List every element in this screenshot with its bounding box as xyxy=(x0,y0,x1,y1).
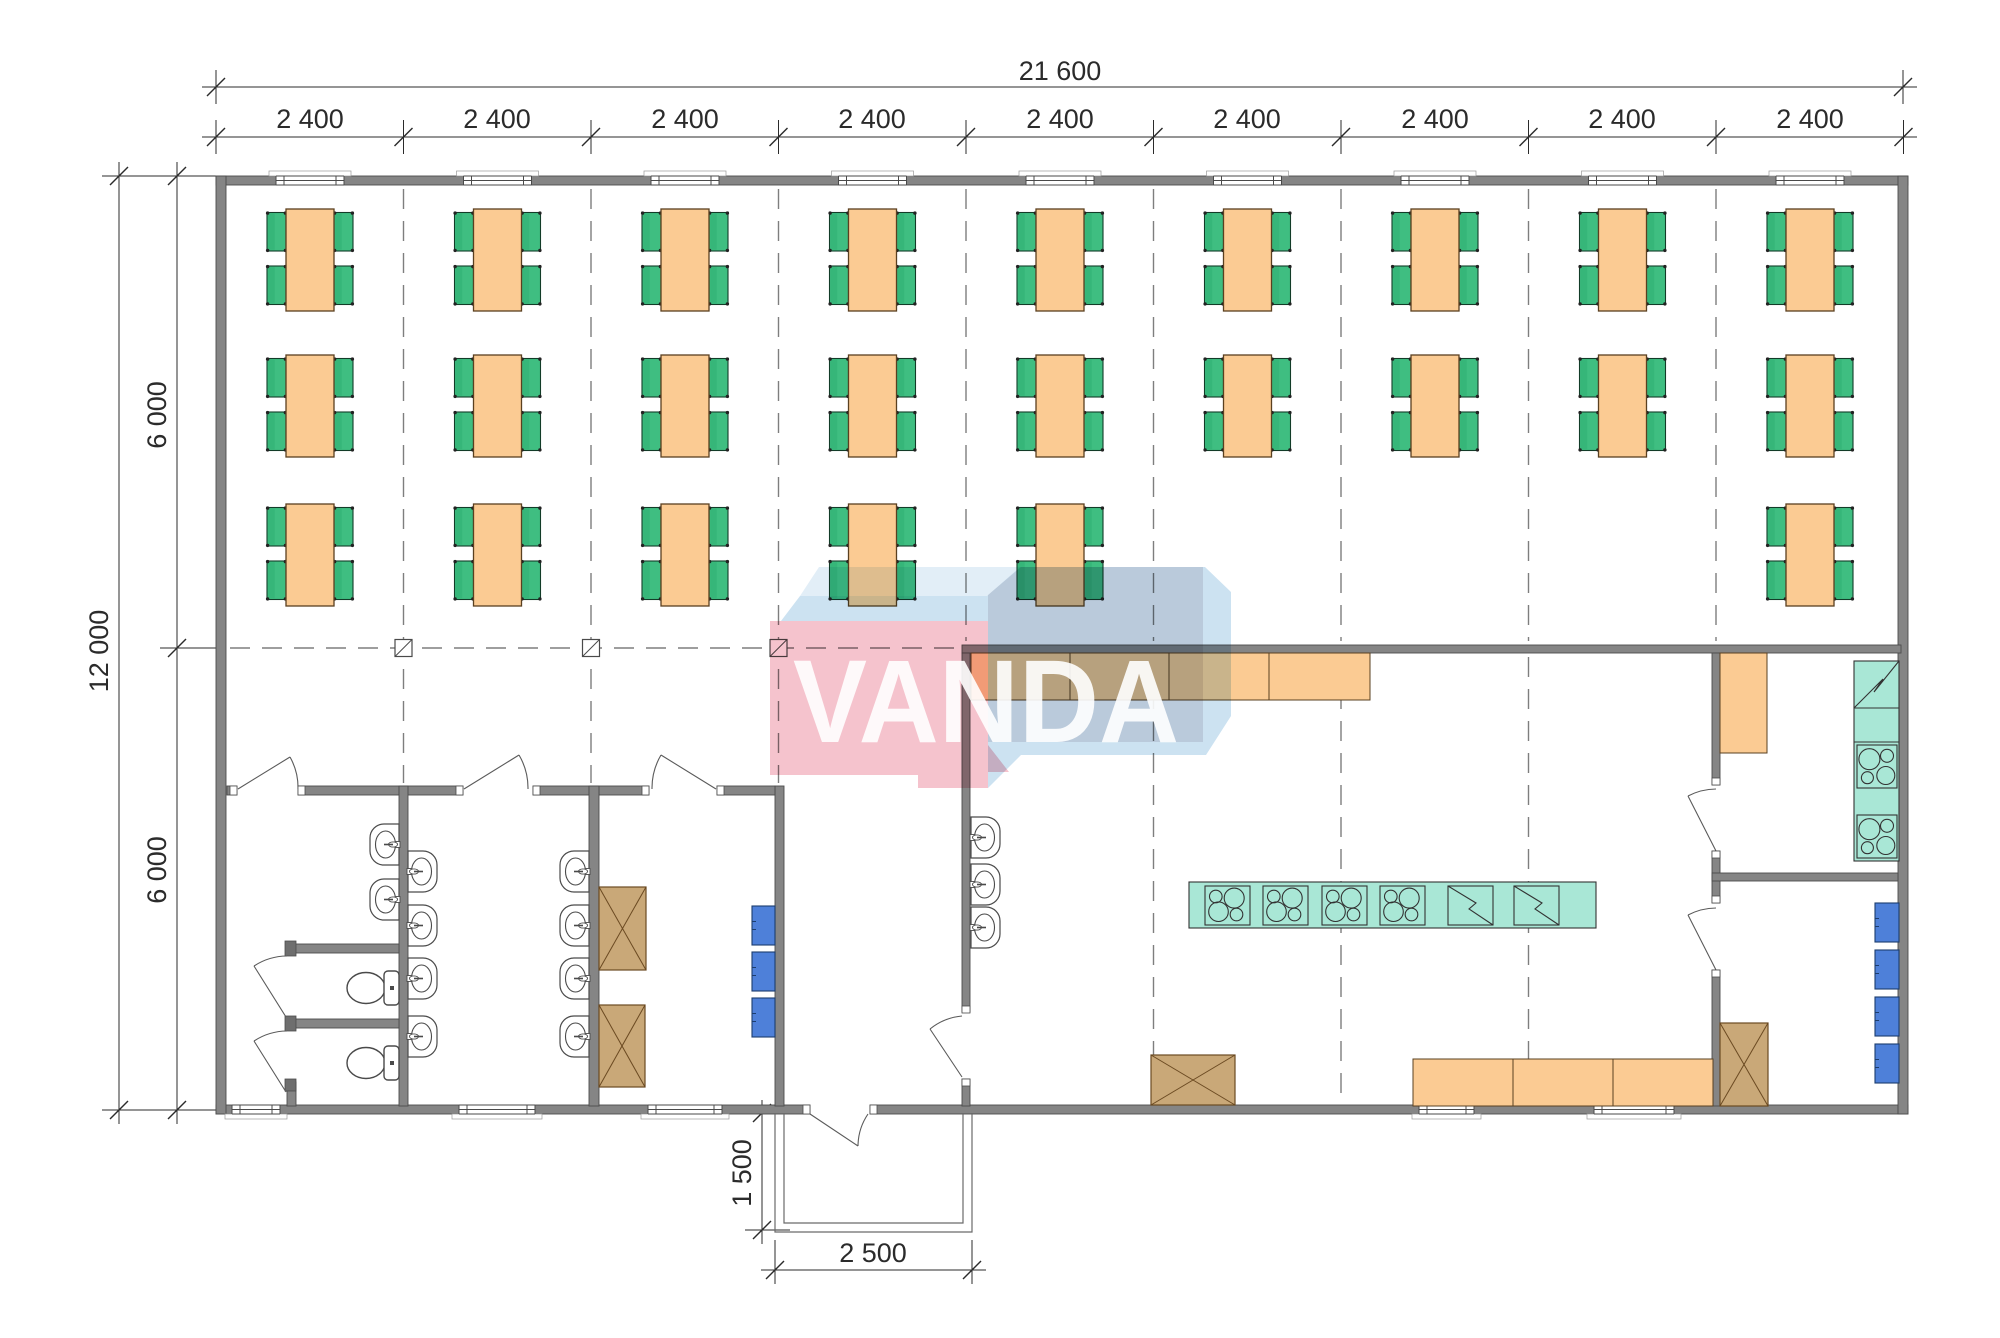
svg-text:6 000: 6 000 xyxy=(142,381,172,449)
svg-text:2 400: 2 400 xyxy=(1588,104,1656,134)
svg-text:2 400: 2 400 xyxy=(651,104,719,134)
svg-text:2 400: 2 400 xyxy=(838,104,906,134)
svg-text:1 500: 1 500 xyxy=(727,1139,757,1207)
svg-text:2 400: 2 400 xyxy=(1776,104,1844,134)
svg-text:2 400: 2 400 xyxy=(1026,104,1094,134)
svg-text:2 500: 2 500 xyxy=(839,1238,907,1268)
svg-text:6 000: 6 000 xyxy=(142,836,172,904)
svg-text:21 600: 21 600 xyxy=(1019,56,1102,86)
svg-text:2 400: 2 400 xyxy=(1213,104,1281,134)
svg-text:2 400: 2 400 xyxy=(1401,104,1469,134)
svg-text:VANDA: VANDA xyxy=(793,636,1179,768)
svg-text:2 400: 2 400 xyxy=(463,104,531,134)
svg-text:2 400: 2 400 xyxy=(276,104,344,134)
svg-text:12 000: 12 000 xyxy=(84,610,114,693)
